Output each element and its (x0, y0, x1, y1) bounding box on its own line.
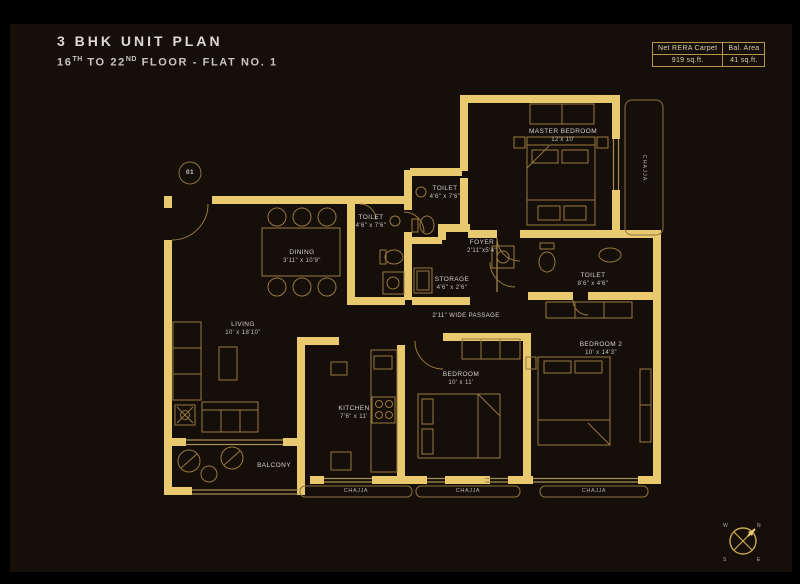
room-name: MASTER BEDROOM (529, 128, 597, 136)
brochure-page: 3 BHK UNIT PLAN 16TH TO 22ND FLOOR - FLA… (0, 0, 800, 584)
room-dims: 12'x 10' (529, 136, 597, 144)
room-dims: 4'6" x 7'6" (430, 193, 461, 201)
subtitle-sup-nd: ND (126, 56, 137, 63)
room-label-balcony: BALCONY (257, 462, 291, 470)
room-label-storage: STORAGE 4'6" x 2'6" (435, 276, 469, 292)
area-table-header-balcony: Bal. Area (723, 43, 765, 55)
chajja-label-2: CHAJJA (456, 487, 480, 495)
room-dims: 10' x 18'10" (225, 329, 261, 337)
chajja-label-1: CHAJJA (344, 487, 368, 495)
room-dims: 4'6" x 7'6" (356, 222, 387, 230)
room-name: TOILET (578, 272, 609, 280)
room-label-bedroom: BEDROOM 10' x 11' (443, 371, 479, 387)
room-dims: 10' x 14'3" (580, 349, 623, 357)
room-label-toilet-right: TOILET 8'6" x 4'6" (578, 272, 609, 288)
subtitle-floor-from: 16 (57, 57, 72, 69)
room-label-dining: DINING 3'11" x 10'9" (283, 249, 321, 265)
room-dims: 4'6" x 2'6" (435, 284, 469, 292)
page-background (10, 24, 792, 572)
room-label-living: LIVING 10' x 18'10" (225, 321, 261, 337)
area-table-value-balcony: 41 sq.ft. (723, 55, 765, 67)
room-label-foyer: FOYER 2'11"x5'4" (467, 239, 497, 255)
room-dims: 10' x 11' (443, 379, 479, 387)
room-name: BEDROOM (443, 371, 479, 379)
subtitle-sup-th: TH (72, 56, 82, 63)
room-name: TOILET (356, 214, 387, 222)
room-dims: 8'6" x 4'6" (578, 280, 609, 288)
page-title: 3 BHK UNIT PLAN (57, 33, 278, 49)
room-label-master-bedroom: MASTER BEDROOM 12'x 10' (529, 128, 597, 144)
room-dims: 2'11"x5'4" (467, 247, 497, 255)
page-subtitle: 16TH TO 22ND FLOOR - FLAT NO. 1 (57, 56, 278, 69)
subtitle-mid: TO 22 (83, 57, 126, 69)
chajja-label-right: CHAJJA (641, 155, 647, 182)
room-dims: 7'6" x 11' (338, 413, 369, 421)
area-table-value-carpet: 919 sq.ft. (653, 55, 723, 67)
room-label-toilet-top: TOILET 4'6" x 7'6" (430, 185, 461, 201)
room-label-toilet-mid: TOILET 4'6" x 7'6" (356, 214, 387, 230)
room-label-bedroom2: BEDROOM 2 10' x 14'3" (580, 341, 623, 357)
room-name: DINING (283, 249, 321, 257)
subtitle-rest: FLOOR - FLAT NO. 1 (137, 57, 278, 69)
room-label-kitchen: KITCHEN 7'6" x 11' (338, 405, 369, 421)
plan-header: 3 BHK UNIT PLAN 16TH TO 22ND FLOOR - FLA… (57, 33, 278, 69)
room-name: FOYER (467, 239, 497, 247)
room-name: LIVING (225, 321, 261, 329)
room-name: TOILET (430, 185, 461, 193)
room-name: BEDROOM 2 (580, 341, 623, 349)
room-name: KITCHEN (338, 405, 369, 413)
room-name: STORAGE (435, 276, 469, 284)
chajja-label-3: CHAJJA (582, 487, 606, 495)
area-table-header-carpet: Net RERA Carpet (653, 43, 723, 55)
room-label-passage: 2'11" WIDE PASSAGE (432, 312, 499, 320)
room-dims: 3'11" x 10'9" (283, 257, 321, 265)
unit-marker-label: 01 (186, 169, 194, 177)
area-table: Net RERA Carpet Bal. Area 919 sq.ft. 41 … (652, 42, 765, 67)
